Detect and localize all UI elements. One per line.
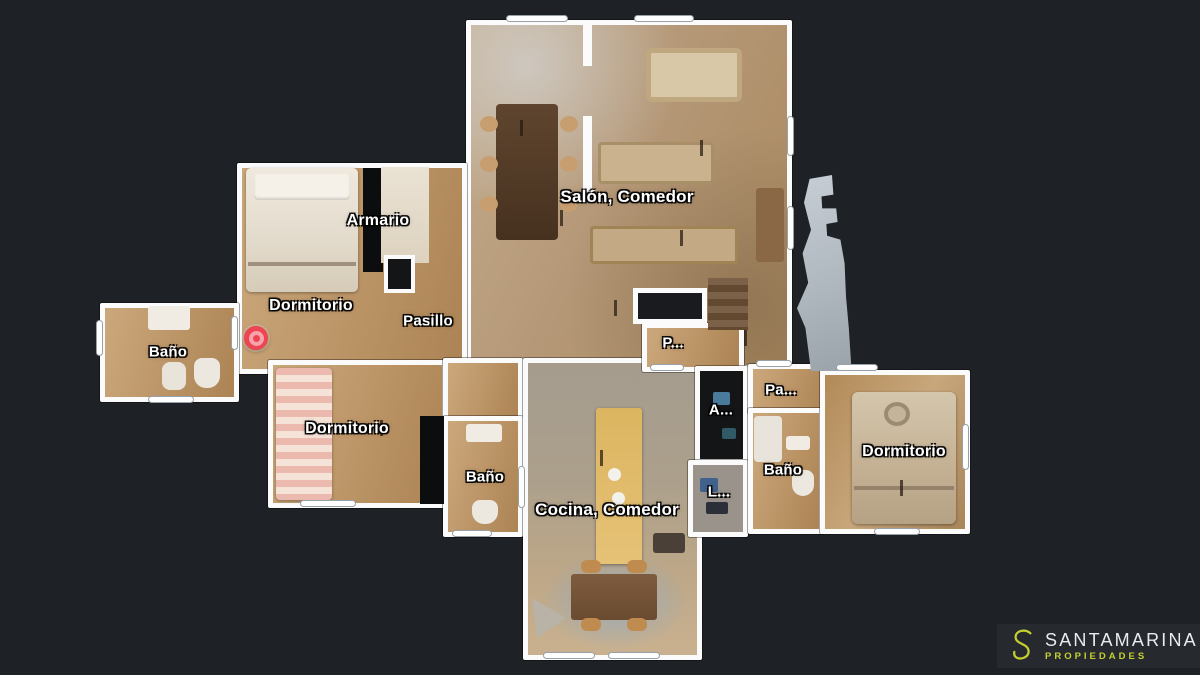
chair [560, 156, 578, 172]
wall-artifact [600, 450, 603, 466]
wall-artifact [614, 300, 617, 316]
camera-marker-core [253, 335, 260, 342]
window-marker [787, 206, 794, 250]
plate [608, 468, 621, 481]
toilet [472, 500, 498, 524]
storage-items [722, 428, 736, 439]
closet [633, 288, 707, 324]
room-label-armario[interactable]: Armario [347, 212, 410, 230]
chair [560, 116, 578, 132]
wall-artifact [560, 210, 563, 226]
chair [480, 116, 498, 132]
brand-name: SANTAMARINA [1045, 631, 1198, 649]
sink [786, 436, 810, 450]
room-label-p-corridor[interactable]: P... [662, 335, 683, 352]
room-label-cocina[interactable]: Cocina, Comedor [535, 500, 679, 520]
sink [466, 424, 502, 442]
window-marker [300, 500, 356, 507]
bed-footline [248, 262, 356, 266]
unscanned-area [420, 416, 444, 504]
terrace-area [790, 175, 860, 371]
brand-logo: SANTAMARINA PROPIEDADES [997, 624, 1200, 668]
wall-artifact [900, 480, 903, 496]
bed-ornament [884, 402, 910, 426]
shower [754, 416, 782, 462]
door-marker [756, 360, 792, 367]
wall-stub [583, 20, 592, 66]
wall-artifact [520, 120, 523, 136]
room-label-bano-izquierdo[interactable]: Baño [149, 344, 187, 361]
stairs [708, 278, 748, 330]
kitchen-island [596, 408, 642, 564]
window-marker [787, 116, 794, 156]
window-marker [148, 396, 194, 403]
seating-set [598, 142, 714, 184]
window-marker [608, 652, 660, 659]
dining-table [496, 104, 558, 240]
bidet [162, 362, 186, 390]
floorplan-viewer[interactable]: Salón, ComedorArmarioDormitorioPasilloBa… [0, 0, 1200, 675]
door-marker [518, 466, 525, 508]
room-label-dormitorio-derecho[interactable]: Dormitorio [862, 443, 946, 461]
door-marker [650, 364, 684, 371]
brand-text: SANTAMARINA PROPIEDADES [1045, 631, 1198, 662]
kitchen-table [571, 574, 657, 620]
window-marker [962, 424, 969, 470]
room-label-bano-derecho[interactable]: Baño [764, 462, 802, 479]
laundry-items [706, 502, 728, 514]
wall-artifact [744, 330, 747, 346]
chair [627, 618, 647, 631]
sofa [590, 226, 738, 264]
camera-marker-ring [249, 331, 264, 346]
room-label-dormitorio-principal[interactable]: Dormitorio [269, 297, 353, 315]
sofa [646, 48, 742, 102]
chair [581, 618, 601, 631]
appliance [653, 533, 685, 553]
sideboard [756, 188, 784, 262]
room-label-dormitorio-inferior[interactable]: Dormitorio [305, 420, 389, 438]
door-marker [836, 364, 878, 371]
chair [627, 560, 647, 573]
room-label-pasillo[interactable]: Pasillo [403, 313, 453, 330]
room-label-bano-central[interactable]: Baño [466, 469, 504, 486]
closet [384, 255, 415, 293]
wall-artifact [700, 140, 703, 156]
bed-pillows [254, 174, 350, 200]
window-marker [96, 320, 103, 356]
bed-footline [854, 486, 954, 490]
wall-artifact [680, 230, 683, 246]
door-marker [231, 316, 238, 350]
toilet [194, 358, 220, 388]
window-marker [452, 530, 492, 537]
chair [581, 560, 601, 573]
sink [148, 306, 190, 330]
chair [480, 156, 498, 172]
window-marker [874, 528, 920, 535]
chair [480, 196, 498, 212]
brand-s-icon [1010, 628, 1036, 664]
room-label-salon[interactable]: Salón, Comedor [560, 187, 693, 207]
hallway-segment[interactable] [443, 358, 523, 421]
room-label-l-room[interactable]: L... [708, 484, 730, 501]
room-label-a-room[interactable]: A... [709, 402, 733, 419]
window-marker [543, 652, 595, 659]
window-marker [506, 15, 568, 22]
brand-tagline: PROPIEDADES [1045, 652, 1198, 662]
room-label-pa-corridor[interactable]: Pa... [765, 382, 797, 399]
camera-position-marker[interactable] [244, 326, 268, 350]
window-marker [634, 15, 694, 22]
